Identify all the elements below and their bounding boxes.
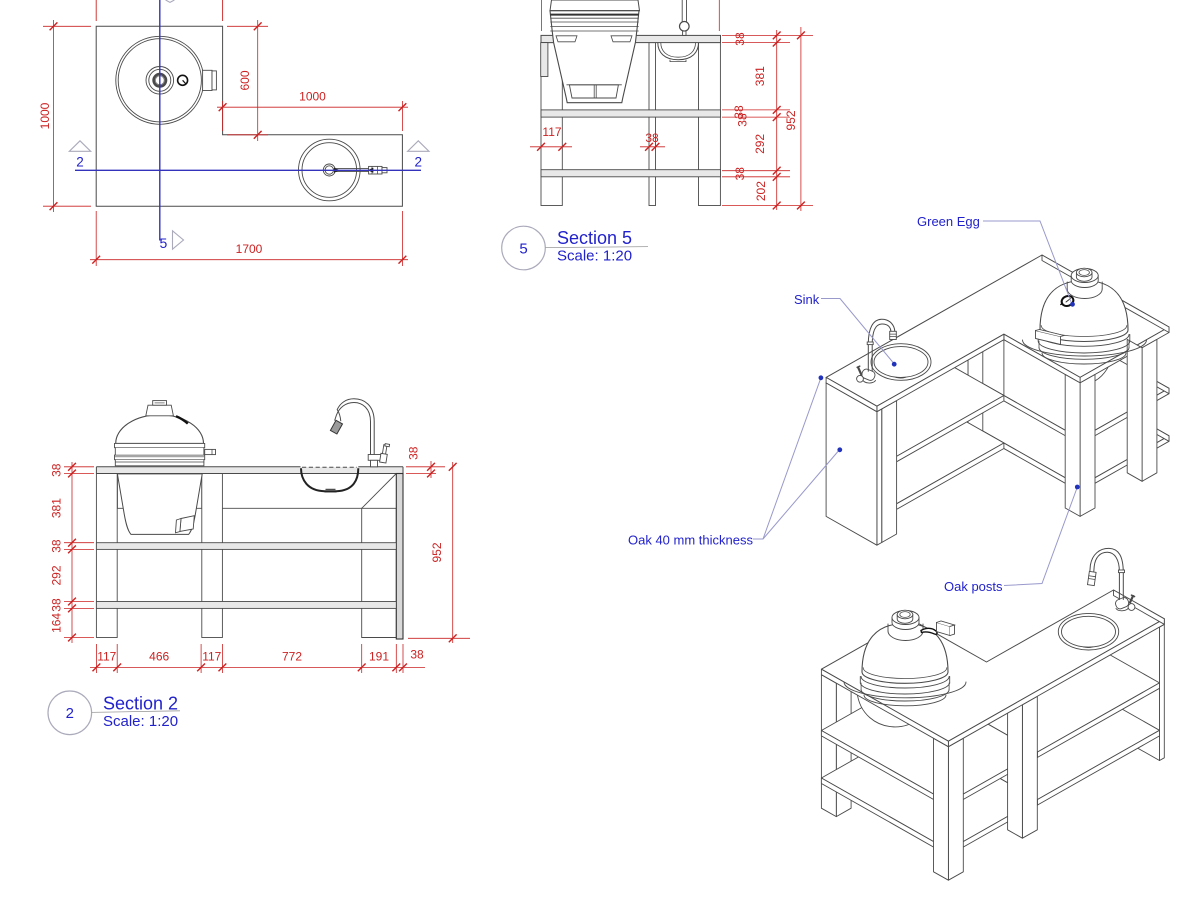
svg-text:38: 38 bbox=[50, 598, 64, 612]
svg-text:1000: 1000 bbox=[299, 89, 326, 103]
svg-text:Green Egg: Green Egg bbox=[917, 214, 980, 229]
svg-text:202: 202 bbox=[754, 181, 768, 201]
svg-text:2: 2 bbox=[66, 705, 74, 722]
svg-text:38: 38 bbox=[733, 167, 747, 181]
svg-text:2: 2 bbox=[76, 155, 84, 170]
svg-text:600: 600 bbox=[238, 70, 252, 90]
svg-text:292: 292 bbox=[753, 134, 767, 154]
svg-text:5: 5 bbox=[519, 240, 527, 257]
svg-text:2: 2 bbox=[415, 155, 423, 170]
svg-text:Section 2: Section 2 bbox=[103, 694, 178, 714]
svg-text:164: 164 bbox=[50, 613, 64, 633]
svg-text:Oak 40 mm thickness: Oak 40 mm thickness bbox=[628, 533, 753, 548]
svg-text:772: 772 bbox=[282, 649, 302, 663]
svg-text:117: 117 bbox=[97, 649, 116, 663]
svg-text:381: 381 bbox=[50, 498, 64, 518]
svg-text:Scale: 1:20: Scale: 1:20 bbox=[557, 247, 632, 264]
svg-text:Scale: 1:20: Scale: 1:20 bbox=[103, 713, 178, 730]
svg-text:952: 952 bbox=[784, 110, 798, 130]
svg-text:117: 117 bbox=[202, 649, 221, 663]
svg-text:38: 38 bbox=[410, 648, 424, 662]
svg-text:1700: 1700 bbox=[236, 242, 263, 256]
svg-text:381: 381 bbox=[753, 66, 767, 86]
svg-text:Section 5: Section 5 bbox=[557, 228, 632, 248]
svg-text:292: 292 bbox=[50, 565, 64, 585]
svg-text:38: 38 bbox=[407, 446, 421, 460]
svg-text:191: 191 bbox=[369, 649, 389, 663]
svg-text:Sink: Sink bbox=[794, 292, 820, 307]
svg-text:1000: 1000 bbox=[38, 102, 52, 129]
svg-text:38: 38 bbox=[733, 32, 747, 46]
svg-text:952: 952 bbox=[430, 542, 444, 562]
svg-text:466: 466 bbox=[149, 649, 169, 663]
svg-text:5: 5 bbox=[160, 235, 168, 251]
svg-text:117: 117 bbox=[542, 125, 561, 139]
svg-text:38: 38 bbox=[736, 113, 750, 127]
svg-text:Oak posts: Oak posts bbox=[944, 579, 1003, 594]
svg-text:38: 38 bbox=[50, 463, 64, 477]
svg-text:38: 38 bbox=[50, 539, 64, 553]
